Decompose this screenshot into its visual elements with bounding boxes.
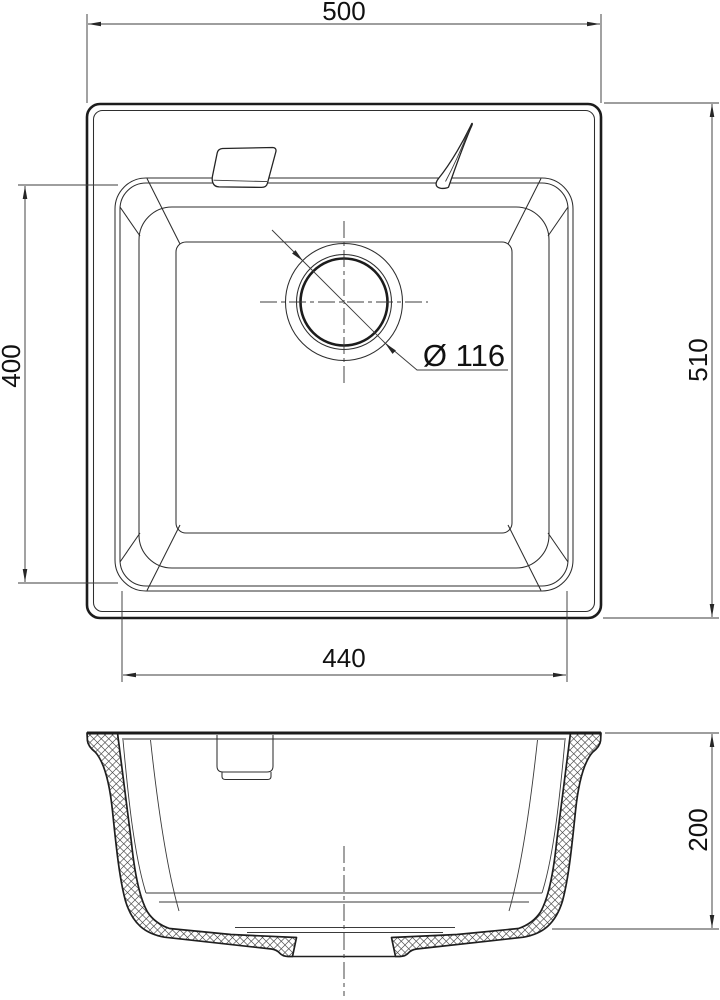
- arrowhead-bottom: [710, 604, 715, 617]
- dimension-label-510: 510: [683, 338, 713, 381]
- section-view: [87, 733, 601, 996]
- extension-lines: [18, 185, 118, 583]
- bowl-silhouette-lines: [123, 740, 565, 933]
- arrowhead-right: [553, 673, 566, 678]
- dimension-label-440: 440: [322, 643, 365, 673]
- arrowhead-lower: [385, 343, 396, 354]
- arrowhead-right: [587, 22, 600, 27]
- dimension-overall-width: 500: [87, 0, 601, 103]
- drain-remote-lever: [436, 123, 472, 188]
- dimension-label-500: 500: [322, 0, 365, 26]
- section-material-left: [87, 733, 297, 957]
- dimension-label-400: 400: [0, 344, 26, 387]
- arrowhead-left: [88, 22, 101, 27]
- sink-technical-drawing: 500 510 400 440 Ø 116: [0, 0, 720, 1000]
- extension-lines: [87, 14, 601, 103]
- arrowhead-left: [123, 673, 136, 678]
- drain: [260, 221, 428, 387]
- arrowhead-top: [23, 186, 28, 199]
- dimension-bowl-length: 400: [0, 185, 118, 583]
- bowl-corner-transitions: [120, 179, 568, 591]
- section-material-right: [392, 733, 602, 957]
- arrowhead-bottom: [710, 915, 715, 928]
- arrowhead-bottom: [23, 569, 28, 582]
- dimension-drain-diameter: Ø 116: [272, 230, 508, 373]
- dimension-label-200: 200: [683, 808, 713, 851]
- dimension-bowl-width: 440: [122, 591, 567, 682]
- arrowhead-top: [710, 734, 715, 747]
- top-view: [87, 104, 601, 618]
- arrowhead-top: [710, 104, 715, 117]
- bowl-rim-outer: [115, 178, 573, 591]
- dimension-label-diameter: Ø 116: [423, 338, 505, 373]
- accessory-recess: [217, 735, 273, 780]
- dimension-overall-length: 510: [603, 103, 719, 618]
